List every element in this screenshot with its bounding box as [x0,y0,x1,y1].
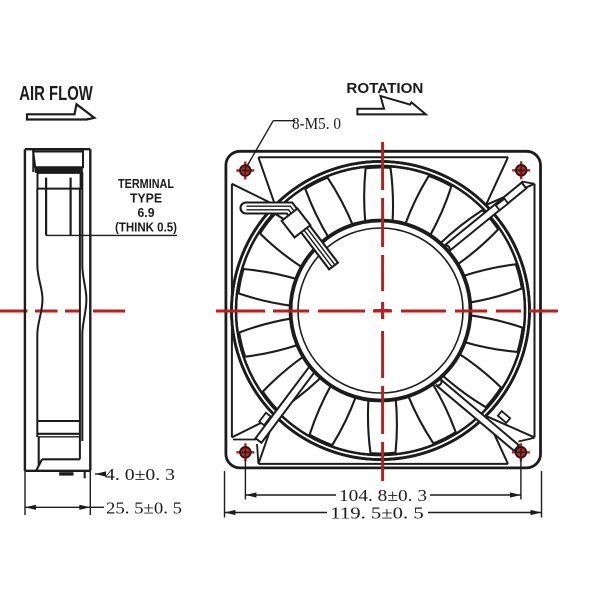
svg-text:104. 8±0. 3: 104. 8±0. 3 [339,486,427,505]
svg-text:119. 5±0. 5: 119. 5±0. 5 [330,504,424,523]
svg-text:AIR FLOW: AIR FLOW [19,83,93,105]
svg-text:TYPE: TYPE [130,191,162,206]
svg-text:ROTATION: ROTATION [346,81,423,97]
svg-text:8-M5. 0: 8-M5. 0 [292,114,341,133]
svg-text:4. 0±0. 3: 4. 0±0. 3 [105,465,175,484]
svg-text:6.9: 6.9 [138,205,155,220]
svg-text:25. 5±0. 5: 25. 5±0. 5 [106,499,182,518]
svg-text:(THINK 0.5): (THINK 0.5) [115,220,177,235]
svg-text:TERMINAL: TERMINAL [118,176,174,191]
